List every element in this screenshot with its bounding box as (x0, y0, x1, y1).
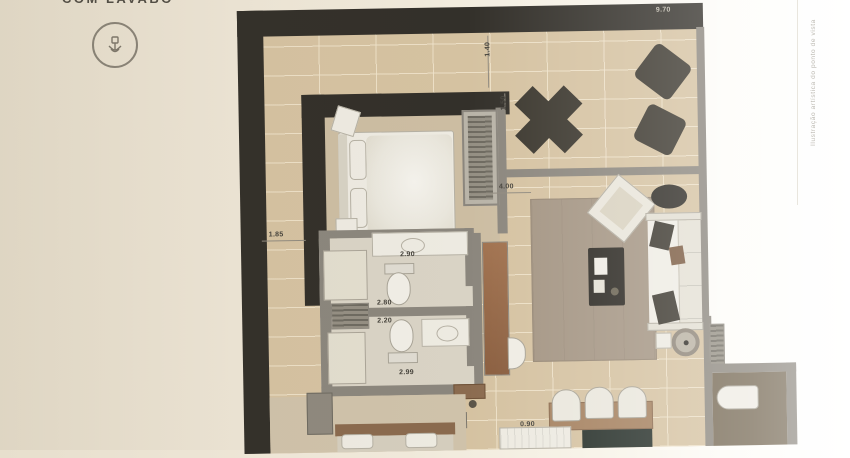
white-stool (655, 333, 671, 349)
vanity-counter (421, 318, 469, 347)
toilet (389, 319, 414, 352)
dimension-label: 2.99 (399, 369, 414, 376)
coffee-table (588, 247, 625, 306)
kitchen-counter (499, 426, 571, 449)
shower-stall (327, 332, 366, 385)
floorplan-page: { "header": { "title_fragment": "COM LAV… (0, 0, 850, 450)
kitchen-island (582, 429, 652, 448)
bed-duvet (366, 134, 454, 239)
pillow (405, 433, 437, 449)
dining-chair (551, 389, 581, 422)
dining-chair (584, 387, 614, 420)
vanity-counter (372, 231, 468, 257)
sofa-armrest (647, 322, 703, 331)
floorplan: 9.70 (0, 0, 850, 458)
lounge-chair-cushion (600, 187, 643, 231)
dining-chair (617, 386, 647, 419)
table-book (594, 280, 605, 293)
table-book (594, 258, 607, 275)
pillow (349, 140, 367, 180)
dimension-label: 1.85 (269, 231, 284, 238)
dimension-label: 1.50 (500, 95, 507, 110)
lavabo-wall-right (786, 362, 797, 444)
sofa-pillow-brown (669, 245, 686, 265)
dimension-label: 1.40 (484, 42, 491, 57)
dimension-label: 2.80 (377, 299, 392, 306)
dimension-label: 4.00 (499, 183, 514, 190)
dimension-label: 2.20 (377, 317, 392, 324)
sofa (645, 212, 703, 331)
toilet-tank (388, 352, 418, 364)
lavabo-fixture (716, 385, 758, 410)
shower-stall (323, 250, 368, 301)
table-decor (611, 287, 619, 295)
pillow (341, 434, 373, 450)
dimension-label: 9.70 (656, 6, 671, 13)
dimension-label: 2.90 (400, 251, 415, 258)
wardrobe-louvers (468, 116, 493, 200)
sink-basin (436, 325, 458, 341)
bath-bench (331, 303, 369, 330)
bedroom2-closet (306, 392, 333, 434)
dimension-label: 0.90 (520, 421, 535, 428)
fan-hub (684, 340, 689, 345)
hall-cabinet (482, 241, 510, 375)
sofa-back-cushions (678, 220, 703, 322)
